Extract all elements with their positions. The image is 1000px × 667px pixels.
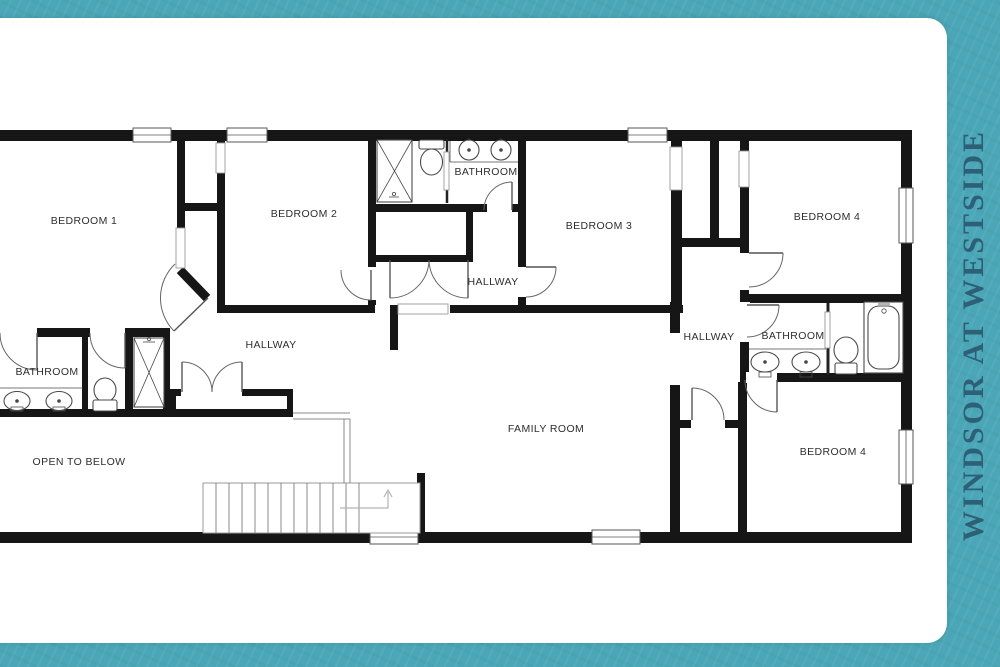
community-title: WINDSOR AT WESTSIDE — [957, 129, 991, 541]
room-label-bathroom-left: BATHROOM — [15, 366, 78, 378]
fixtures — [0, 138, 903, 411]
room-label-open-to-below: OPEN TO BELOW — [33, 456, 126, 468]
toilet-icon — [834, 337, 858, 374]
room-label-hallway-left: HALLWAY — [245, 339, 296, 351]
stairs — [203, 413, 420, 533]
room-label-hallway-right: HALLWAY — [683, 331, 734, 343]
room-label-bedroom-1: BEDROOM 1 — [51, 215, 118, 227]
sink-icon — [450, 138, 518, 162]
room-label-bedroom-4-top: BEDROOM 4 — [794, 211, 861, 223]
page-root: { "title": "WINDSOR AT WESTSIDE", "color… — [0, 0, 1000, 667]
shower-icon — [134, 337, 164, 407]
doors — [0, 182, 783, 420]
room-label-bedroom-4-bottom: BEDROOM 4 — [800, 446, 867, 458]
floorplan-canvas — [0, 0, 1000, 667]
bathtub-icon — [864, 302, 903, 373]
room-label-bathroom-right: BATHROOM — [761, 330, 824, 342]
toilet-icon — [93, 378, 117, 411]
room-label-family-room: FAMILY ROOM — [508, 423, 584, 435]
room-label-bedroom-3: BEDROOM 3 — [566, 220, 633, 232]
room-label-hallway-top: HALLWAY — [467, 276, 518, 288]
room-label-bathroom-top: BATHROOM — [454, 166, 517, 178]
toilet-icon — [419, 140, 444, 175]
room-label-bedroom-2: BEDROOM 2 — [271, 208, 338, 220]
shower-icon — [377, 140, 412, 202]
sink-icon — [0, 388, 83, 411]
